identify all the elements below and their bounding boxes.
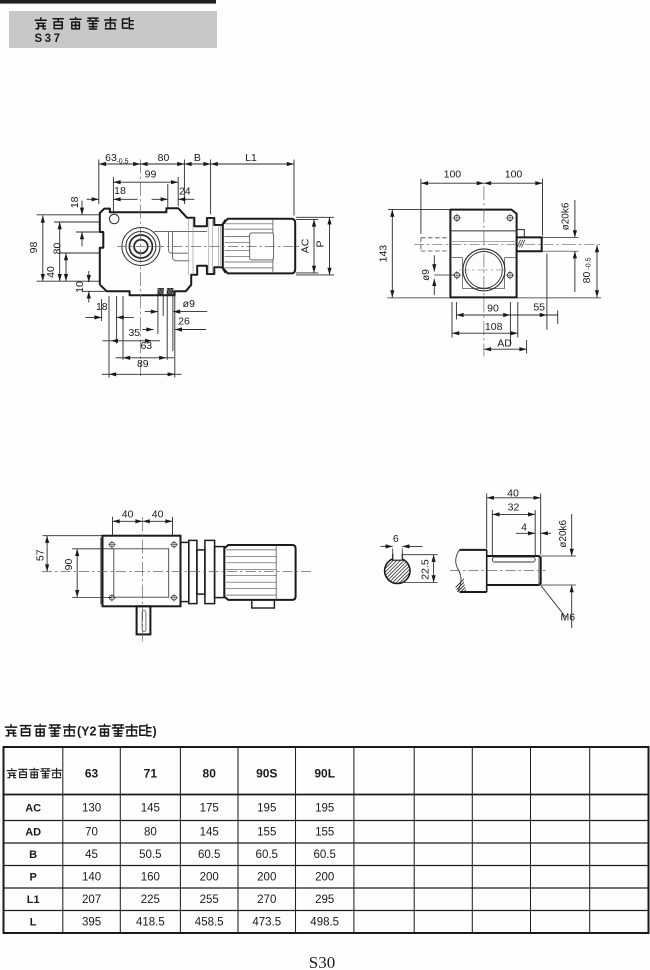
svg-text:80: 80: [51, 243, 63, 255]
svg-text:98: 98: [28, 242, 40, 254]
svg-text:(Y2: (Y2: [77, 724, 97, 738]
svg-text:18: 18: [96, 301, 108, 313]
svg-text:90S: 90S: [256, 767, 277, 781]
svg-text:22.5: 22.5: [419, 559, 431, 580]
svg-text:35: 35: [128, 327, 140, 339]
svg-text:6: 6: [393, 533, 399, 545]
svg-text:40: 40: [45, 266, 57, 278]
svg-text:60.5: 60.5: [314, 849, 336, 861]
svg-text:40: 40: [122, 508, 134, 520]
svg-text:108: 108: [485, 321, 503, 333]
svg-text:99: 99: [145, 169, 157, 181]
svg-text:40: 40: [507, 488, 519, 500]
svg-text:90: 90: [63, 559, 75, 571]
svg-text:60.5: 60.5: [198, 849, 220, 861]
svg-text:155: 155: [315, 827, 334, 839]
svg-text:AD: AD: [497, 337, 512, 349]
svg-text:45: 45: [85, 849, 98, 861]
svg-text:207: 207: [82, 894, 101, 906]
svg-text:225: 225: [141, 894, 160, 906]
svg-text:200: 200: [257, 872, 276, 884]
svg-text:458.5: 458.5: [195, 917, 224, 929]
svg-text:270: 270: [257, 894, 276, 906]
svg-text:18: 18: [114, 185, 126, 197]
svg-text:P: P: [29, 872, 36, 884]
svg-text:40: 40: [152, 508, 164, 520]
svg-text:473.5: 473.5: [252, 917, 281, 929]
svg-text:395: 395: [82, 917, 101, 929]
svg-text:60.5: 60.5: [256, 849, 278, 861]
svg-text:L: L: [30, 917, 37, 929]
svg-text:80: 80: [158, 152, 170, 164]
svg-text:AC: AC: [25, 803, 41, 815]
svg-text:10: 10: [74, 281, 86, 293]
svg-text:130: 130: [82, 803, 101, 815]
svg-text:4: 4: [521, 521, 527, 533]
svg-text:ø9: ø9: [183, 298, 195, 310]
svg-text:-0.5: -0.5: [116, 159, 128, 166]
svg-text:71: 71: [144, 767, 158, 781]
svg-text:S30: S30: [309, 953, 335, 970]
svg-text:80: 80: [144, 827, 157, 839]
svg-text:-0.5: -0.5: [586, 257, 593, 269]
svg-text:145: 145: [200, 827, 219, 839]
svg-text:57: 57: [35, 549, 47, 561]
svg-text:32: 32: [508, 501, 520, 513]
svg-text:P: P: [315, 240, 327, 247]
svg-text:140: 140: [82, 872, 101, 884]
svg-text:143: 143: [378, 245, 390, 263]
svg-text:70: 70: [85, 827, 98, 839]
svg-text:200: 200: [200, 872, 219, 884]
svg-text:90: 90: [487, 303, 499, 315]
svg-text:63: 63: [140, 340, 152, 352]
svg-text:498.5: 498.5: [310, 917, 339, 929]
svg-text:63: 63: [85, 767, 99, 781]
svg-text:89: 89: [137, 358, 149, 370]
svg-text:ø20k6: ø20k6: [558, 519, 569, 547]
svg-text:255: 255: [200, 894, 219, 906]
svg-text:160: 160: [141, 872, 160, 884]
svg-text:195: 195: [257, 803, 276, 815]
svg-text:100: 100: [505, 169, 523, 181]
svg-text:): ): [153, 724, 157, 738]
svg-text:AD: AD: [25, 827, 41, 839]
svg-text:24: 24: [179, 186, 191, 198]
svg-text:195: 195: [315, 803, 334, 815]
svg-text:418.5: 418.5: [136, 917, 165, 929]
svg-text:80: 80: [581, 272, 593, 284]
svg-text:B: B: [29, 849, 37, 861]
svg-text:50.5: 50.5: [139, 849, 161, 861]
svg-text:B: B: [194, 152, 201, 164]
svg-text:M6: M6: [561, 612, 576, 624]
svg-text:55: 55: [533, 302, 545, 314]
svg-text:200: 200: [315, 872, 334, 884]
svg-text:155: 155: [257, 827, 276, 839]
svg-text:ø20k6: ø20k6: [561, 202, 572, 230]
svg-text:175: 175: [200, 803, 219, 815]
svg-text:90L: 90L: [314, 767, 335, 781]
svg-text:26: 26: [178, 315, 190, 327]
svg-text:63: 63: [105, 152, 117, 164]
svg-text:145: 145: [141, 803, 160, 815]
svg-text:L1: L1: [27, 894, 40, 906]
svg-text:80: 80: [203, 767, 217, 781]
svg-text:AC: AC: [300, 238, 312, 253]
svg-text:100: 100: [444, 169, 462, 181]
svg-text:18: 18: [69, 196, 81, 208]
svg-text:L1: L1: [245, 152, 257, 164]
svg-text:295: 295: [315, 894, 334, 906]
svg-text:S37: S37: [35, 33, 63, 45]
svg-text:ø9: ø9: [421, 269, 432, 281]
